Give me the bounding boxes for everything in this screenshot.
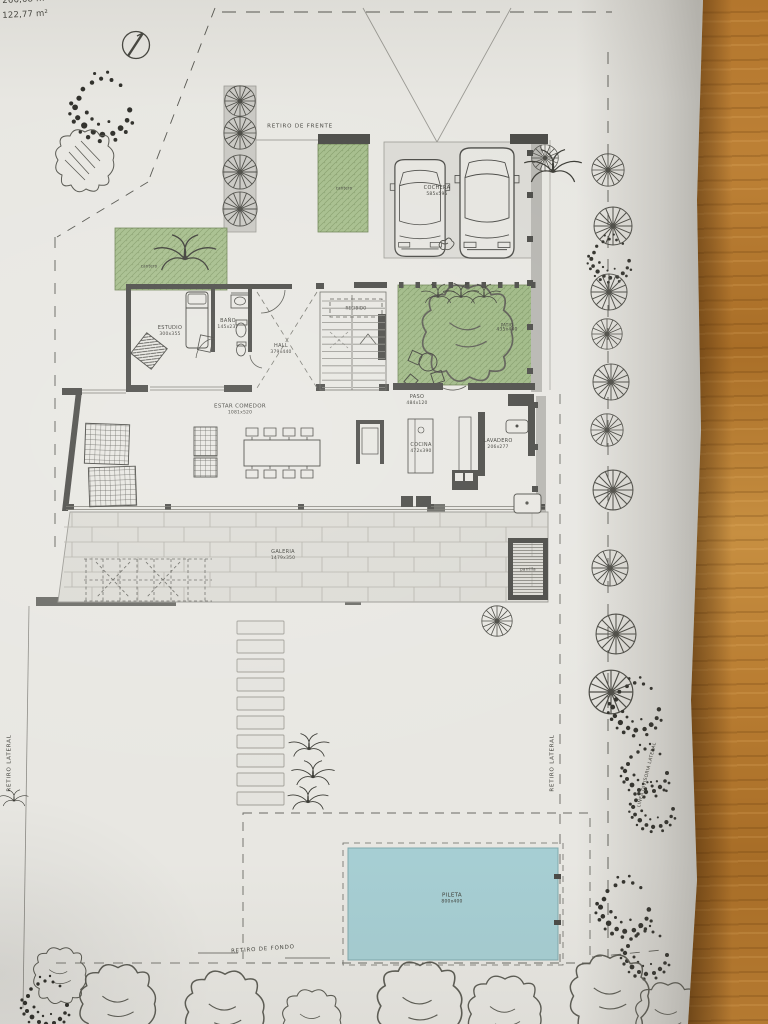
- pool-area: [243, 813, 590, 965]
- bano-label: BAÑO 145x237: [217, 318, 238, 330]
- recibido-label: RECIBIDO: [345, 305, 366, 310]
- floor-plan-sheet: 266,08 m² 122,77 m² RETIRO DE FRENTE can…: [0, 0, 768, 1024]
- stepping-stones-path: [237, 621, 284, 805]
- retiro-lateral-left-label: RETIRO LATERAL: [6, 734, 13, 791]
- photo-scene: 266,08 m² 122,77 m² RETIRO DE FRENTE can…: [0, 0, 768, 1024]
- parrilla-label: parrilla: [520, 566, 536, 571]
- floor-plan-drawing: [0, 0, 768, 1024]
- cochera-label: COCHERA 585x595: [424, 185, 451, 197]
- windows: [66, 387, 545, 510]
- galeria-terrace: [58, 494, 548, 602]
- cocina-label: COCINA 472x390: [410, 442, 431, 454]
- cantero-strip-label: cantero: [336, 185, 353, 190]
- retiro-frente-label: RETIRO DE FRENTE: [267, 123, 333, 130]
- retiro-lateral-right-label: RETIRO LATERAL: [549, 734, 556, 791]
- pileta-label: PILETA 800x400: [441, 893, 462, 906]
- hall-label: HALL 379x440: [270, 343, 291, 355]
- lavadero-label: LAVADERO 206x277: [483, 438, 512, 450]
- estudio-label: ESTUDIO 300x355: [158, 325, 182, 337]
- paso-label: PASO 484x120: [406, 394, 427, 406]
- car-suv-icon: [455, 148, 519, 258]
- estar-comedor-label: ESTAR COMEDOR 1081x520: [214, 404, 266, 417]
- cantero-left-label: cantero: [141, 263, 158, 268]
- north-arrow-icon: [123, 32, 150, 59]
- galeria-label: GALERIA 1479x350: [271, 549, 295, 561]
- patio-label: PATIO 435x440: [496, 322, 517, 333]
